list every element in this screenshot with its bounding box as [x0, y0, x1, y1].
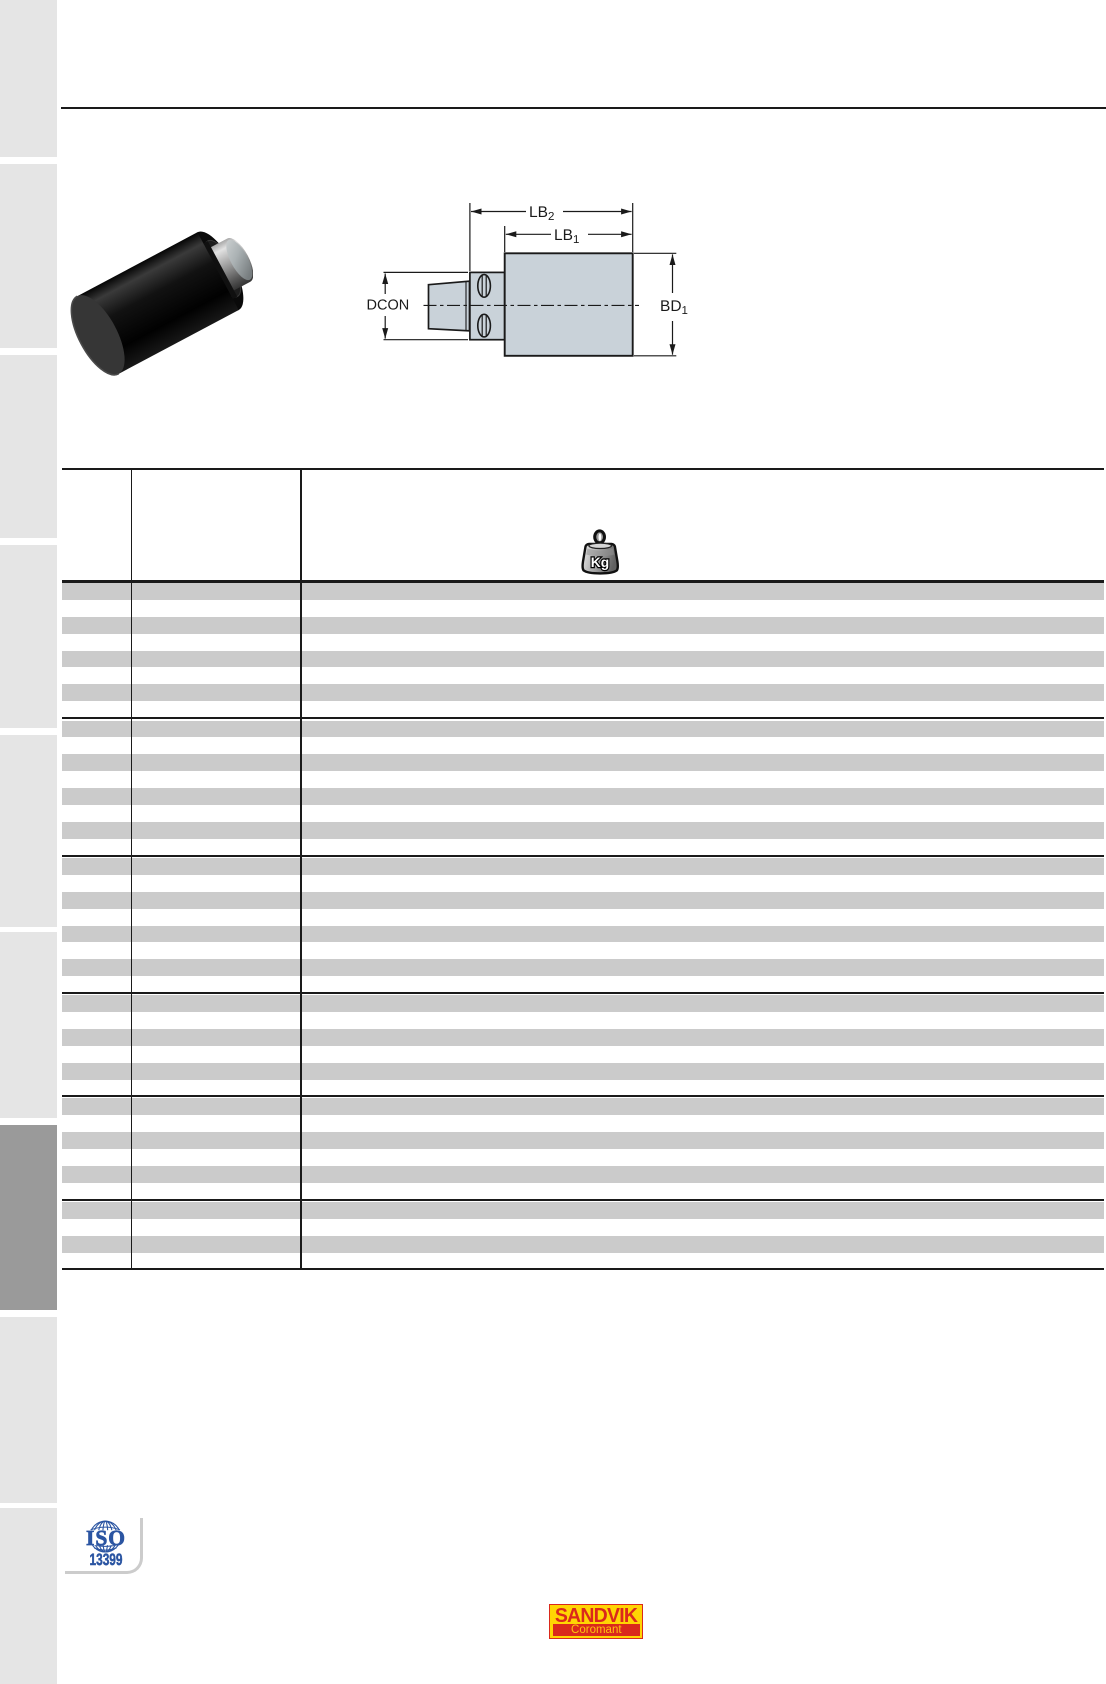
svg-text:Kg: Kg: [591, 555, 609, 570]
svg-text:BD1: BD1: [660, 298, 688, 317]
svg-text:LB2: LB2: [529, 204, 554, 223]
svg-text:DCON: DCON: [367, 298, 410, 314]
svg-text:LB1: LB1: [554, 227, 579, 246]
svg-text:13399: 13399: [89, 1551, 122, 1568]
svg-text:ISO: ISO: [86, 1526, 126, 1550]
